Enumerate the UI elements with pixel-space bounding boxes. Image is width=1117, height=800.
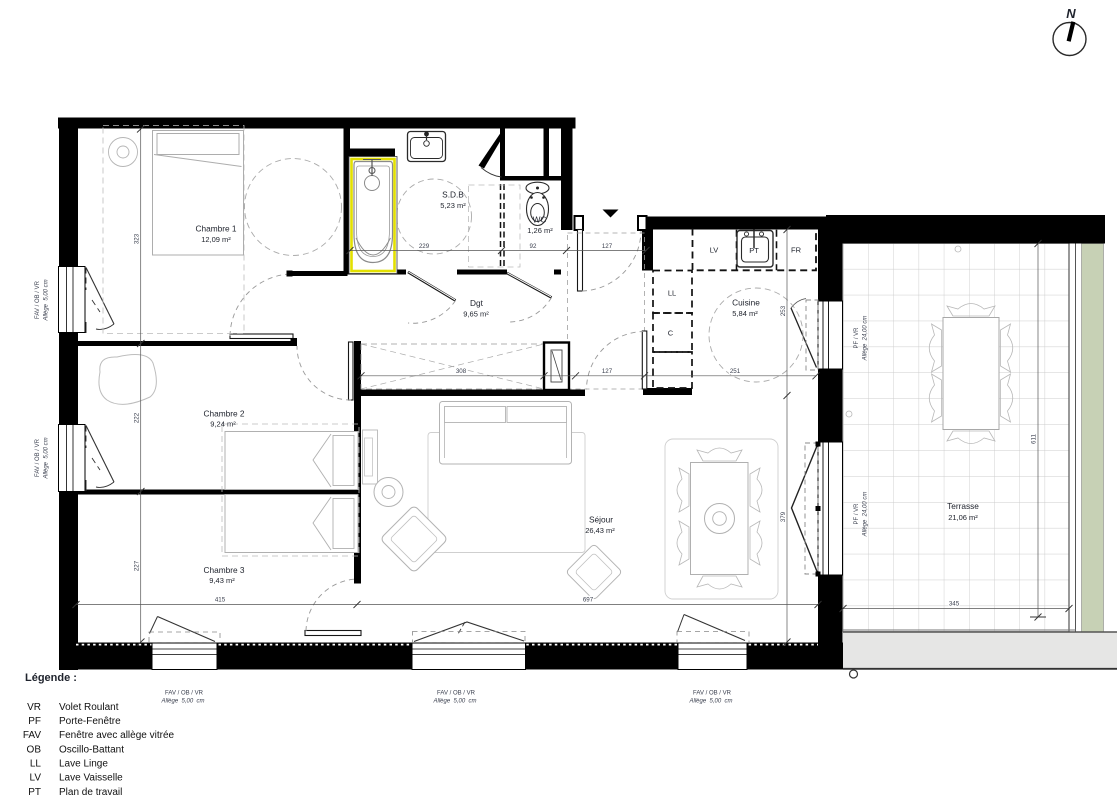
svg-text:92: 92 <box>530 243 537 250</box>
svg-text:FAV / OB / VR: FAV / OB / VR <box>35 280 41 319</box>
svg-text:229: 229 <box>419 243 430 250</box>
svg-text:611: 611 <box>1031 434 1038 444</box>
svg-text:C: C <box>668 329 674 338</box>
svg-text:S.D.B: S.D.B <box>442 190 464 200</box>
svg-text:251: 251 <box>730 368 741 375</box>
svg-text:9,43 m²: 9,43 m² <box>209 576 235 585</box>
svg-text:FAV / OB / VR: FAV / OB / VR <box>35 438 41 477</box>
svg-text:FAV / OB / VR: FAV / OB / VR <box>437 691 476 697</box>
svg-text:Allège 5,00 cm: Allège 5,00 cm <box>160 699 204 705</box>
svg-text:Chambre 3: Chambre 3 <box>203 565 244 575</box>
svg-text:Légende :: Légende : <box>25 672 77 684</box>
svg-text:12,09 m²: 12,09 m² <box>201 235 231 244</box>
svg-text:415: 415 <box>215 597 226 604</box>
svg-text:PF / VR: PF / VR <box>854 327 860 349</box>
svg-text:5,84 m²: 5,84 m² <box>732 309 758 318</box>
svg-text:Allège 5,00 cm: Allège 5,00 cm <box>432 699 476 705</box>
svg-text:Oscillo-Battant: Oscillo-Battant <box>59 745 124 756</box>
svg-text:Allège 24,00 cm: Allège 24,00 cm <box>863 492 869 538</box>
svg-text:LL: LL <box>30 759 42 770</box>
svg-text:Dgt: Dgt <box>470 298 484 308</box>
svg-text:Allège 24,00 cm: Allège 24,00 cm <box>863 316 869 362</box>
svg-text:379: 379 <box>780 511 787 522</box>
svg-text:9,24 m²: 9,24 m² <box>210 420 236 429</box>
svg-text:Fenêtre avec allège vitrée: Fenêtre avec allège vitrée <box>59 730 175 741</box>
svg-text:N: N <box>1066 6 1076 21</box>
svg-text:21,06 m²: 21,06 m² <box>948 513 978 522</box>
svg-text:Terrasse: Terrasse <box>947 501 979 511</box>
svg-text:FAV: FAV <box>23 730 41 741</box>
svg-text:PF / VR: PF / VR <box>854 503 860 525</box>
svg-text:127: 127 <box>602 243 613 250</box>
svg-text:308: 308 <box>456 368 467 375</box>
svg-text:697: 697 <box>583 597 594 604</box>
svg-text:FAV / OB / VR: FAV / OB / VR <box>693 691 732 697</box>
svg-text:Lave Vaisselle: Lave Vaisselle <box>59 773 123 784</box>
svg-text:Volet Roulant: Volet Roulant <box>59 702 119 713</box>
svg-text:227: 227 <box>134 560 141 571</box>
svg-text:OB: OB <box>27 745 42 756</box>
svg-text:323: 323 <box>134 233 141 244</box>
svg-text:WC: WC <box>533 215 547 225</box>
svg-text:PT: PT <box>28 787 41 798</box>
svg-text:253: 253 <box>780 305 787 316</box>
svg-text:1,26 m²: 1,26 m² <box>527 226 553 235</box>
svg-text:FR: FR <box>791 246 802 255</box>
svg-text:26,43 m²: 26,43 m² <box>585 526 615 535</box>
svg-text:Cuisine: Cuisine <box>732 298 760 308</box>
svg-text:Chambre 1: Chambre 1 <box>195 224 236 234</box>
svg-text:5,23 m²: 5,23 m² <box>440 201 466 210</box>
svg-text:222: 222 <box>134 412 141 423</box>
svg-text:9,65 m²: 9,65 m² <box>463 310 489 319</box>
svg-text:Allège 5,00 cm: Allège 5,00 cm <box>44 437 50 479</box>
svg-text:Séjour: Séjour <box>589 515 613 525</box>
svg-text:LV: LV <box>30 773 42 784</box>
svg-text:345: 345 <box>949 601 960 608</box>
svg-text:FAV / OB / VR: FAV / OB / VR <box>165 691 204 697</box>
svg-text:PF: PF <box>28 716 41 727</box>
svg-text:Chambre 2: Chambre 2 <box>203 409 244 419</box>
svg-text:Allège 5,00 cm: Allège 5,00 cm <box>44 279 50 321</box>
svg-text:LL: LL <box>668 289 676 298</box>
svg-text:Porte-Fenêtre: Porte-Fenêtre <box>59 716 121 727</box>
svg-text:PT: PT <box>749 246 759 255</box>
svg-text:Plan de travail: Plan de travail <box>59 787 122 798</box>
svg-text:LV: LV <box>710 246 719 255</box>
svg-text:Allège 5,00 cm: Allège 5,00 cm <box>688 699 732 705</box>
svg-text:VR: VR <box>27 702 41 713</box>
svg-text:Lave Linge: Lave Linge <box>59 759 108 770</box>
svg-text:127: 127 <box>602 368 613 375</box>
